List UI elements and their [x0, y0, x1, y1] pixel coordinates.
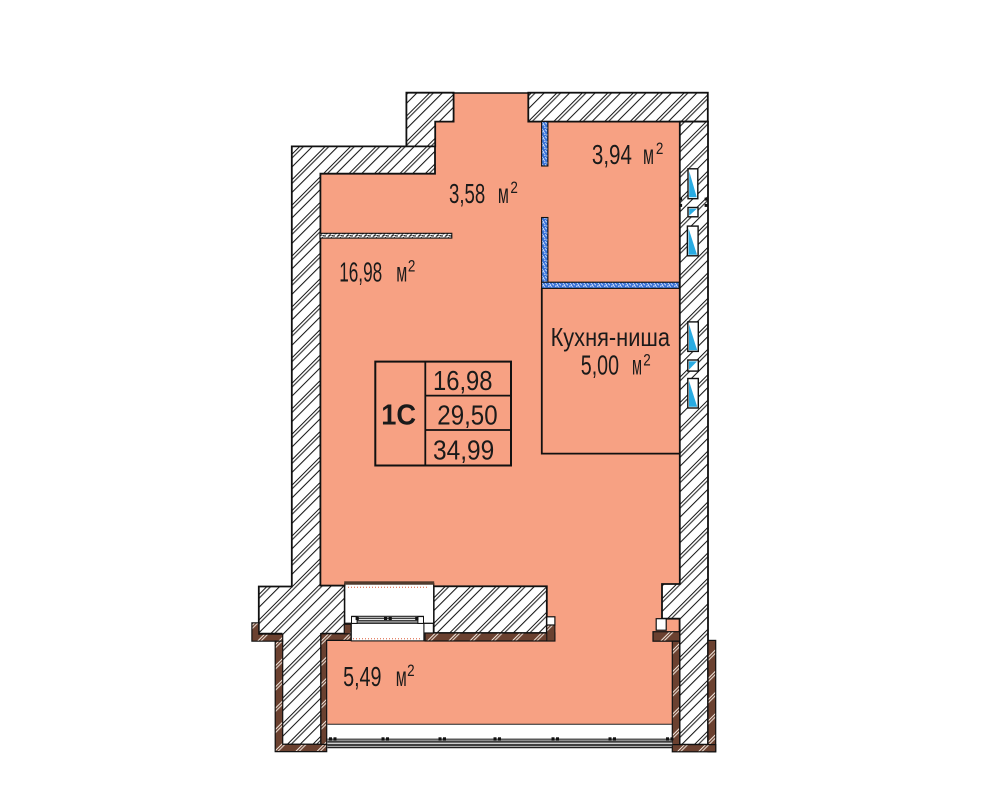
svg-text:1С: 1С — [381, 399, 416, 431]
svg-text:м: м — [396, 661, 407, 692]
svg-text:29,50: 29,50 — [437, 399, 497, 430]
svg-text:2: 2 — [510, 178, 518, 197]
svg-text:2: 2 — [643, 351, 651, 370]
svg-text:м: м — [643, 139, 654, 170]
svg-text:2: 2 — [407, 661, 415, 680]
svg-text:2: 2 — [656, 139, 664, 158]
svg-text:5,00: 5,00 — [581, 350, 619, 381]
svg-text:м: м — [498, 178, 509, 209]
svg-text:34,99: 34,99 — [433, 434, 494, 465]
svg-text:Кухня-ниша: Кухня-ниша — [551, 322, 671, 352]
svg-text:5,49: 5,49 — [343, 661, 381, 692]
svg-text:3,58: 3,58 — [449, 178, 485, 209]
svg-text:2: 2 — [408, 257, 416, 276]
svg-text:м: м — [396, 257, 407, 288]
svg-text:м: м — [632, 350, 642, 381]
svg-text:16,98: 16,98 — [433, 365, 493, 396]
svg-text:3,94: 3,94 — [592, 139, 632, 170]
svg-text:16,98: 16,98 — [339, 257, 382, 288]
